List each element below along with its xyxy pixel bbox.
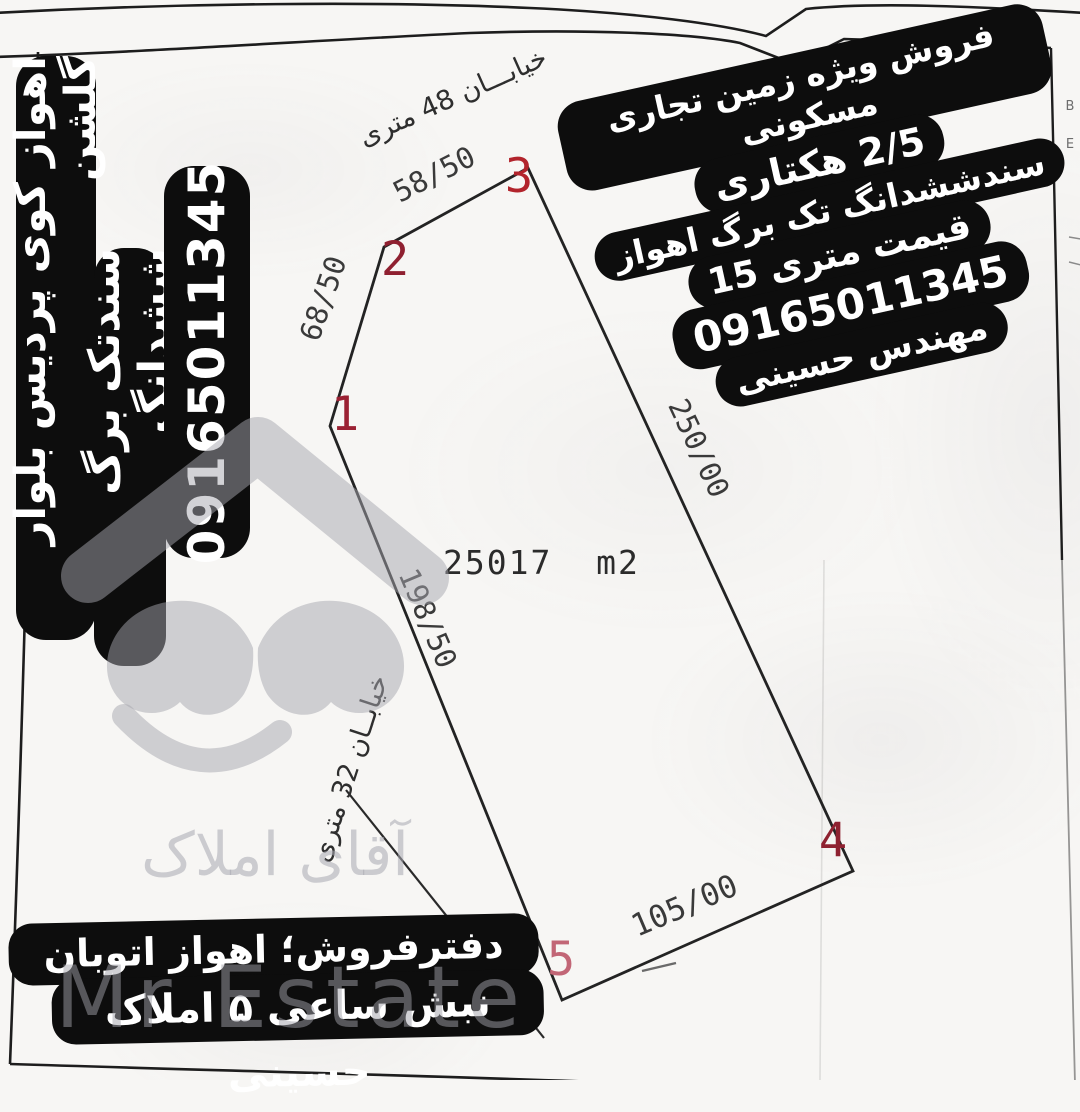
vertex-label-3: 3	[496, 150, 542, 204]
plot-area-label: 25017 m2	[443, 543, 673, 585]
watermark-brand-fa: آقای املاک	[75, 820, 475, 890]
vertex-label-2: 2	[372, 233, 418, 287]
vertex-label-4: 4	[810, 814, 856, 868]
left-banner-line-deed: سندتک برگ ششدانگ	[94, 248, 166, 666]
watermark-brand-en: Mr Estate	[55, 948, 755, 1048]
vertex-label-1: 1	[322, 388, 368, 442]
scanned-land-ad: { "watermark": { "brand_fa": "آقای املاک…	[0, 0, 1080, 1080]
paper-right-edge-lower	[1062, 560, 1075, 1080]
left-banner-phone: 09165011345	[164, 166, 250, 558]
